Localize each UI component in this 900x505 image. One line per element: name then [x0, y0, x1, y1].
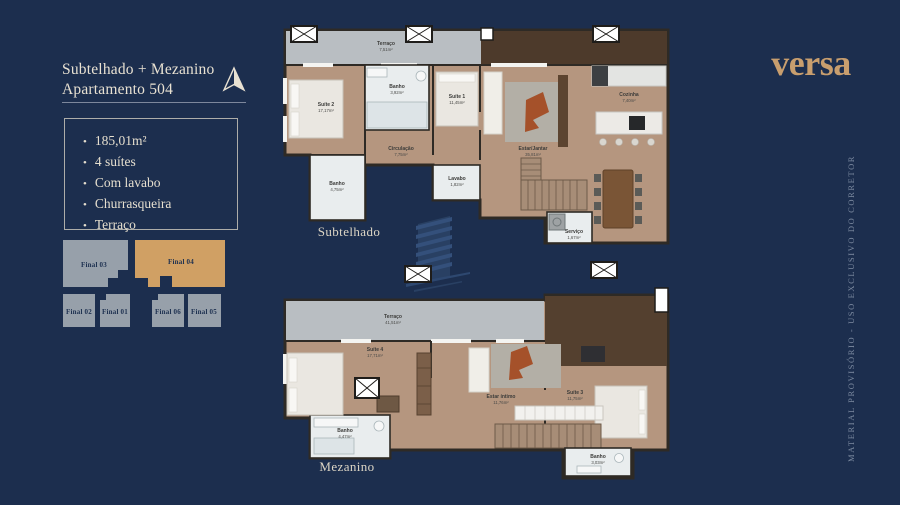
divider-line: [62, 102, 246, 103]
keyplan-label: Final 04: [168, 258, 194, 266]
roof-area: [545, 296, 667, 366]
legal-vertical-note: MATERIAL PROVISÓRIO - USO EXCLUSIVO DO C…: [846, 222, 856, 462]
room-area: 3,92m²: [390, 90, 404, 95]
room-area: 7,75m²: [394, 152, 408, 157]
room-area: 7,51m²: [379, 47, 393, 52]
north-arrow-icon: [222, 66, 246, 92]
sofa: [469, 348, 489, 392]
room-area: 4,47m²: [338, 434, 352, 439]
marketing-slide: Subtelhado + Mezanino Apartamento 504 •1…: [0, 0, 900, 505]
feature-item: •Churrasqueira: [83, 194, 229, 215]
feature-item: •4 suítes: [83, 152, 229, 173]
room-area: 7,40m²: [622, 98, 636, 103]
room-area: 4,75m²: [330, 187, 344, 192]
room-area: 11,75m²: [567, 396, 583, 401]
bullet-icon: •: [83, 136, 87, 148]
elevator-shaft-icon: [593, 26, 619, 42]
room-area: 35,81m²: [525, 152, 541, 157]
keyplan-label: Final 05: [191, 308, 217, 316]
elevator-shaft-icon: [406, 26, 432, 42]
keyplan-label: Final 02: [66, 308, 92, 316]
cooktop: [629, 116, 645, 130]
elevator-shaft-icon: [591, 262, 617, 278]
page-title: Subtelhado + Mezanino Apartamento 504: [62, 60, 214, 101]
plan-caption-mezanino: Mezanino: [292, 459, 402, 475]
wardrobe: [417, 353, 431, 415]
elevator-shaft-icon: [355, 378, 379, 398]
bullet-icon: •: [83, 178, 87, 190]
keyplan: Final 03 Final 04 Final 02 Final 01 Fina…: [60, 238, 230, 330]
elevator-shaft-icon: [291, 26, 317, 42]
duct-shaft: [655, 288, 668, 312]
dining-table: [603, 170, 633, 228]
room-area: 1,82m²: [450, 182, 464, 187]
bullet-icon: •: [83, 220, 87, 232]
closet-shelf: [377, 396, 399, 412]
terrace-floor: [286, 301, 544, 341]
title-line2: Apartamento 504: [62, 81, 173, 98]
feature-item: •185,01m²: [83, 131, 229, 152]
bullet-icon: •: [83, 199, 87, 211]
tv-panel: [558, 75, 568, 147]
header: Subtelhado + Mezanino Apartamento 504: [62, 60, 246, 101]
keyplan-label: Final 06: [155, 308, 181, 316]
features-list: •185,01m² •4 suítes •Com lavabo •Churras…: [83, 131, 229, 236]
keyplan-label: Final 03: [81, 261, 107, 269]
room-area: 41,51m²: [385, 320, 401, 325]
plan-caption-subtelhado: Subtelhado: [294, 224, 404, 240]
floorplan-mezanino: Terraço 41,51m² Suíte 4 17,71m² Banho 4,…: [281, 258, 671, 480]
floorplan-subtelhado: Terraço 7,51m² Suíte 2 17,17m² Banho 3,9…: [281, 20, 671, 245]
washer: [549, 214, 565, 230]
bullet-icon: •: [83, 157, 87, 169]
versa-logo: versa: [756, 42, 866, 84]
room-area: 17,71m²: [367, 353, 383, 358]
roof-area: [481, 31, 667, 65]
bookshelf: [515, 406, 603, 420]
room-area: 1,67m²: [567, 235, 581, 240]
features-box: •185,01m² •4 suítes •Com lavabo •Churras…: [64, 118, 238, 230]
sofa: [484, 72, 502, 134]
elevator-shaft-icon: [405, 266, 431, 282]
void-railing: [581, 346, 605, 362]
keyplan-label: Final 01: [102, 308, 128, 316]
feature-item: •Terraço: [83, 215, 229, 236]
room-area: 11,45m²: [449, 100, 465, 105]
feature-item: •Com lavabo: [83, 173, 229, 194]
room-area: 11,76m²: [493, 400, 509, 405]
room-area: 3,03m²: [591, 460, 605, 465]
room-area: 17,17m²: [318, 108, 334, 113]
title-line1: Subtelhado + Mezanino: [62, 61, 214, 78]
